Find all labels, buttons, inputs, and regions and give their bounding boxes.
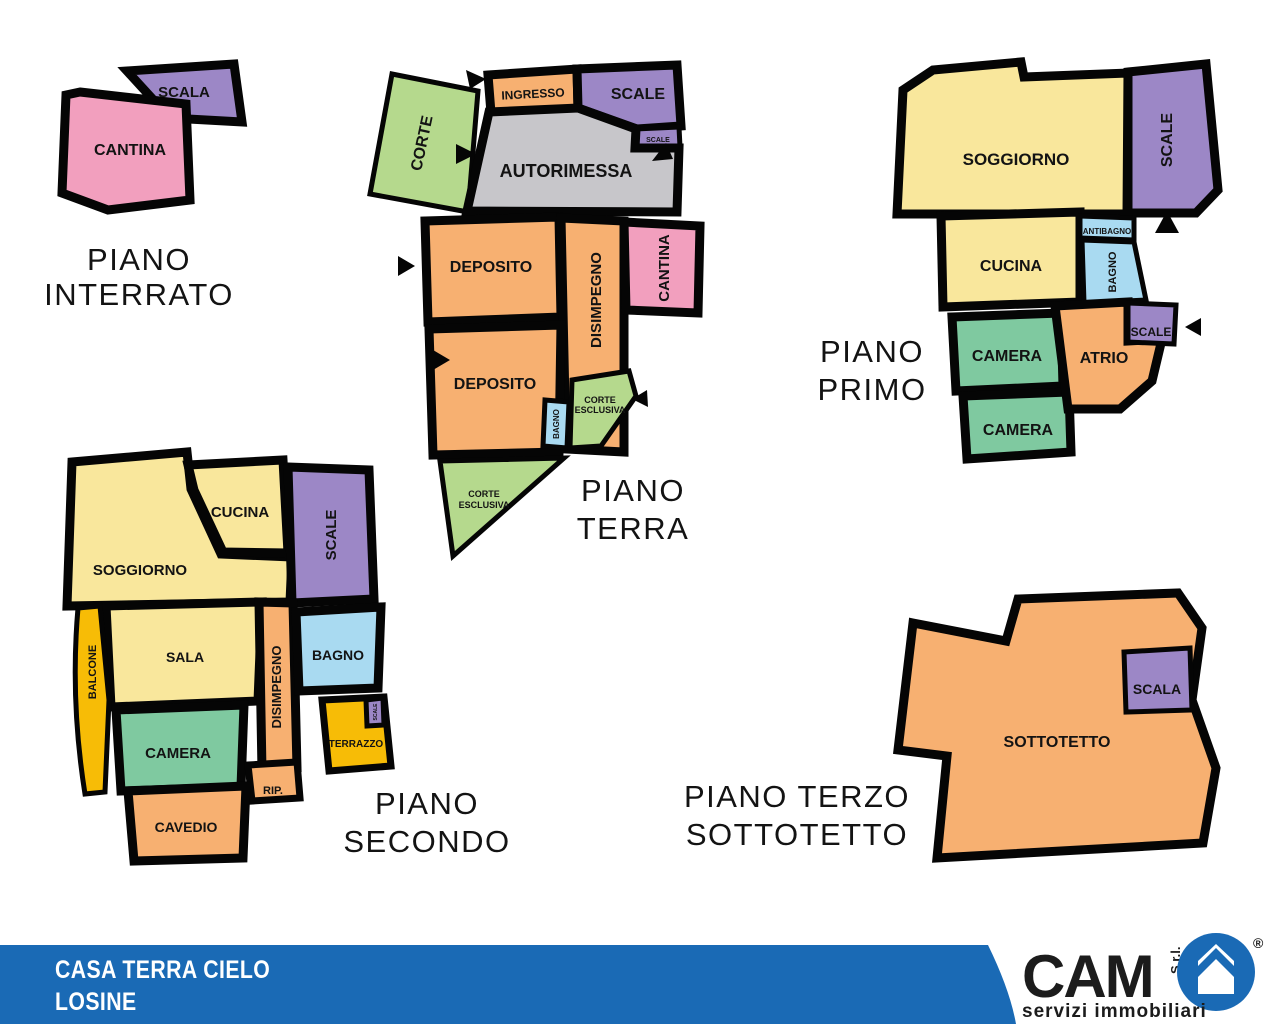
- floor-title-interrato-line2: INTERRATO: [44, 277, 234, 312]
- room-label-scala-terzo: SCALA: [1133, 681, 1181, 697]
- room-label-disimpegno-secondo: DISIMPEGNO: [269, 645, 284, 728]
- room-label-scale-primo: SCALE: [1159, 113, 1176, 168]
- property-name: CASA TERRA CIELO: [55, 955, 270, 983]
- floor-plan-secondo: CUCINA SCALE SOGGIORNO SALA BALCONE DISI…: [67, 452, 511, 861]
- room-label-scale-small-primo: SCALE: [1131, 325, 1172, 339]
- room-label-rip: RIP.: [263, 785, 283, 797]
- floor-plan-terra: CORTE INGRESSO SCALE SCALE AUTORIMESSA D…: [370, 65, 700, 556]
- room-label-corte-esclusiva-2b: ESCLUSIVA: [459, 500, 510, 510]
- floor-title-terzo-line2: SOTTOTETTO: [686, 817, 908, 852]
- floor-title-secondo-line2: SECONDO: [343, 824, 510, 859]
- floor-title-terra-line2: TERRA: [577, 511, 690, 546]
- entrance-arrow: [1185, 318, 1201, 336]
- entrance-arrow: [398, 256, 415, 276]
- room-label-corte-esclusiva-2a: CORTE: [468, 489, 500, 499]
- cam-logo: CAM S.r.l. ® servizi immobiliari: [988, 933, 1280, 1024]
- room-label-cucina-primo: CUCINA: [980, 258, 1043, 275]
- room-label-camera-1: CAMERA: [972, 348, 1043, 365]
- floor-title-primo-line2: PRIMO: [817, 372, 926, 407]
- room-label-cantina: CANTINA: [94, 142, 166, 159]
- room-label-balcone: BALCONE: [87, 645, 99, 699]
- room-label-bagno-primo: BAGNO: [1107, 251, 1119, 292]
- registered-mark: ®: [1253, 935, 1264, 951]
- room-label-corte-esclusiva-1b: ESCLUSIVA: [575, 405, 626, 415]
- floor-title-interrato-line1: PIANO: [87, 242, 191, 277]
- room-label-atrio: ATRIO: [1080, 350, 1129, 367]
- room-label-cavedio: CAVEDIO: [155, 819, 218, 835]
- room-label-deposito-1: DEPOSITO: [450, 259, 532, 276]
- room-label-bagno-terra: BAGNO: [552, 409, 561, 439]
- room-label-corte-esclusiva-1a: CORTE: [584, 395, 616, 405]
- floor-title-terzo-line1: PIANO TERZO: [684, 779, 910, 814]
- room-label-bagno-secondo: BAGNO: [312, 647, 364, 663]
- logo-tagline: servizi immobiliari: [1022, 1001, 1207, 1022]
- floor-title-primo-line1: PIANO: [820, 334, 924, 369]
- room-label-terrazzo: TERRAZZO: [329, 739, 384, 750]
- room-label-cantina-terra: CANTINA: [656, 234, 673, 302]
- room-label-sala: SALA: [166, 649, 204, 665]
- room-label-autorimessa: AUTORIMESSA: [500, 161, 633, 181]
- room-label-scala: SCALA: [158, 84, 210, 101]
- room-label-scale-tiny-secondo: SCALE: [373, 703, 379, 721]
- room-label-soggiorno-secondo: SOGGIORNO: [93, 562, 188, 579]
- room-label-antibagno: ANTIBAGNO: [1083, 227, 1131, 236]
- room-label-scale-secondo: SCALE: [323, 510, 340, 561]
- floor-plan-primo: SOGGIORNO SCALE CUCINA ANTIBAGNO BAGNO C…: [817, 62, 1218, 459]
- room-label-disimpegno-terra: DISIMPEGNO: [588, 252, 605, 348]
- room-label-soggiorno-primo: SOGGIORNO: [963, 150, 1070, 169]
- room-label-camera-secondo: CAMERA: [145, 745, 211, 762]
- floor-plan-terzo: SOTTOTETTO SCALA PIANO TERZO SOTTOTETTO: [684, 593, 1216, 858]
- entrance-arrow: [466, 70, 486, 89]
- logo-name: CAM: [1022, 943, 1153, 1010]
- footer-bar: CASA TERRA CIELO LOSINE CAM S.r.l. ® ser…: [0, 933, 1280, 1024]
- room-scala-terzo: [1124, 648, 1192, 712]
- property-location: LOSINE: [55, 987, 137, 1015]
- floor-title-terra-line1: PIANO: [581, 473, 685, 508]
- room-label-deposito-2: DEPOSITO: [454, 376, 536, 393]
- floor-title-secondo-line1: PIANO: [375, 786, 479, 821]
- room-label-camera-2: CAMERA: [983, 422, 1054, 439]
- floor-plans-canvas: SCALA CANTINA PIANO INTERRATO CORTE INGR…: [0, 0, 1280, 1024]
- room-label-cucina-secondo: CUCINA: [211, 504, 269, 521]
- room-soggiorno-primo: [897, 62, 1128, 214]
- room-label-scale-small-terra: SCALE: [646, 137, 670, 144]
- room-label-sottotetto: SOTTOTETTO: [1004, 734, 1111, 751]
- room-sottotetto: [898, 593, 1216, 858]
- room-label-scale-terra: SCALE: [611, 86, 666, 103]
- floor-plan-interrato: SCALA CANTINA PIANO INTERRATO: [44, 64, 242, 312]
